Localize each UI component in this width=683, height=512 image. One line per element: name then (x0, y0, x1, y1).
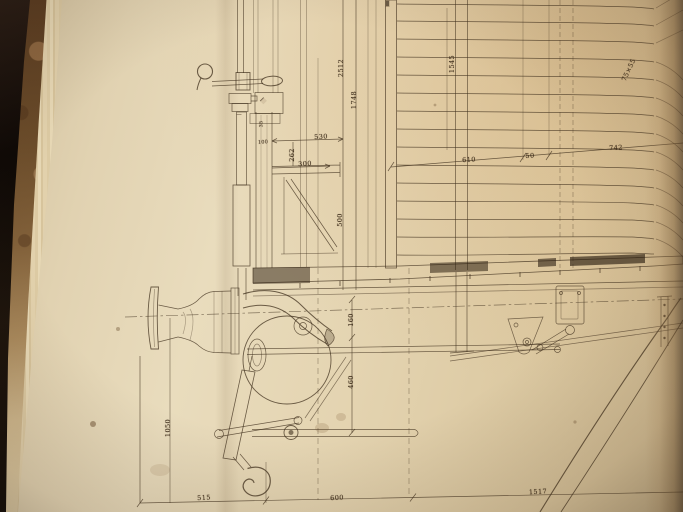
dim-label-300: 300 (298, 160, 312, 167)
dim-label-1545: 1545 (449, 55, 456, 73)
dim-label-2512: 2512 (338, 59, 345, 77)
dim-label-500: 500 (337, 213, 344, 227)
dim-label-100: 100 (258, 140, 268, 146)
dim-label-530: 530 (314, 133, 328, 140)
dim-label-600: 600 (330, 494, 344, 501)
dim-label-1517: 1517 (529, 488, 547, 495)
dim-label-460: 460 (348, 375, 355, 389)
dim-label-1050: 1050 (165, 419, 172, 437)
photo-of-engineering-drawing: 2512 1748 530 262 300 1545 75×55 610 50 … (0, 0, 683, 512)
dim-label-50: 50 (525, 153, 534, 160)
dim-label-515: 515 (197, 494, 211, 501)
dim-label-35: 35 (260, 121, 265, 128)
dim-label-742: 742 (609, 144, 623, 151)
dim-label-160: 160 (348, 313, 355, 327)
dim-label-1748: 1748 (351, 91, 358, 109)
dim-label-262: 262 (289, 148, 296, 162)
dim-label-610: 610 (462, 156, 476, 163)
